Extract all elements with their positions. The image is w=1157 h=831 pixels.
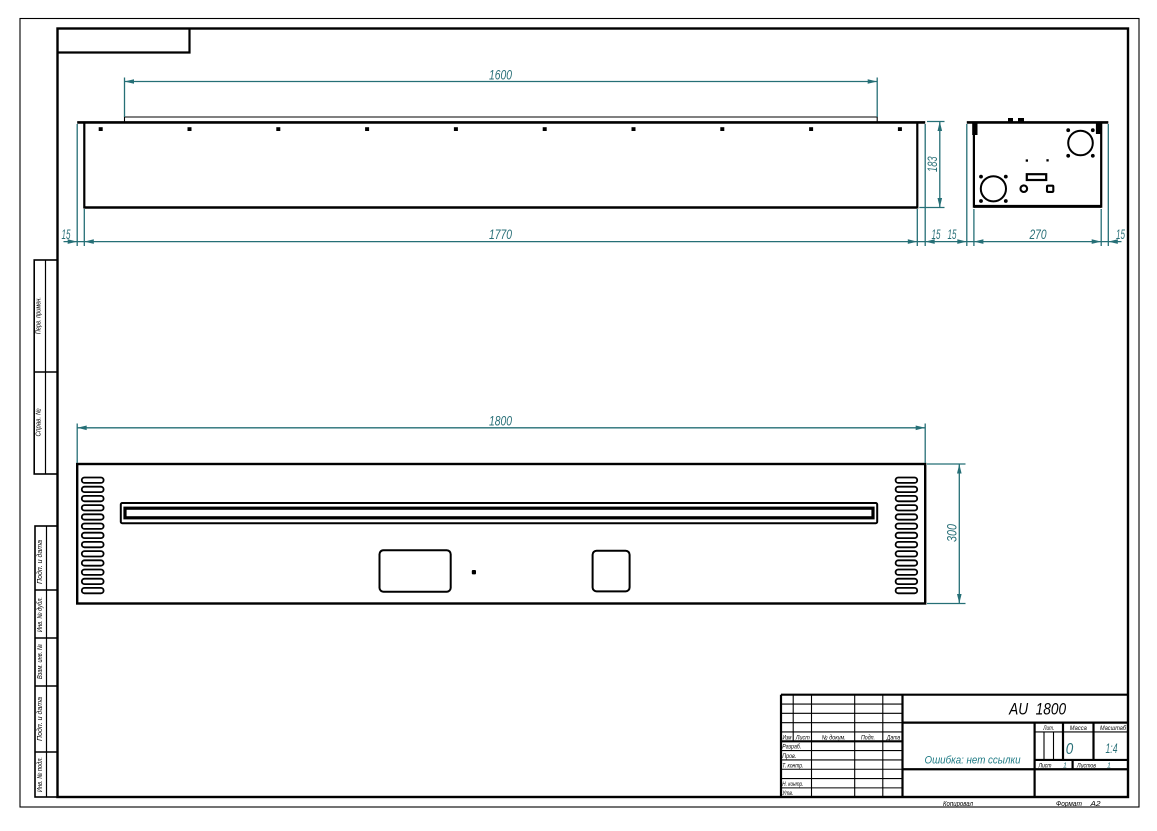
- svg-text:Инв. № дубл.: Инв. № дубл.: [36, 597, 44, 632]
- svg-text:Лист: Лист: [795, 734, 810, 741]
- svg-text:Т. контр.: Т. контр.: [782, 762, 803, 769]
- svg-text:Пров.: Пров.: [782, 753, 796, 760]
- svg-text:Ошибка: нет ссылки: Ошибка: нет ссылки: [925, 755, 1021, 767]
- svg-text:1: 1: [1063, 763, 1067, 770]
- svg-text:15: 15: [932, 227, 941, 242]
- svg-text:Справ. №: Справ. №: [36, 408, 43, 436]
- svg-text:Изм: Изм: [783, 734, 792, 741]
- svg-text:№ докум.: № докум.: [822, 733, 846, 741]
- svg-text:1770: 1770: [489, 227, 512, 242]
- svg-text:Взам. инв. №: Взам. инв. №: [37, 644, 44, 679]
- svg-text:Лит.: Лит.: [1043, 725, 1055, 732]
- svg-text:Разраб.: Разраб.: [782, 743, 801, 751]
- svg-text:Дата: Дата: [886, 734, 901, 741]
- svg-text:15: 15: [948, 227, 957, 242]
- svg-text:1600: 1600: [489, 67, 512, 82]
- svg-text:AU 1800: AU 1800: [1008, 700, 1066, 719]
- svg-text:Инв. № подл.: Инв. № подл.: [36, 757, 44, 792]
- svg-text:300: 300: [945, 524, 960, 542]
- svg-text:Масштаб: Масштаб: [1100, 724, 1126, 732]
- svg-text:Формат: Формат: [1056, 799, 1082, 808]
- svg-text:0: 0: [1066, 741, 1074, 758]
- svg-text:Утв.: Утв.: [782, 790, 794, 797]
- svg-text:270: 270: [1029, 227, 1047, 242]
- svg-text:15: 15: [1116, 227, 1125, 242]
- svg-text:Перв. примен.: Перв. примен.: [36, 297, 43, 334]
- svg-text:1: 1: [1107, 763, 1111, 770]
- svg-text:А2: А2: [1089, 799, 1101, 808]
- svg-text:Подп.: Подп.: [861, 733, 875, 741]
- svg-text:1800: 1800: [489, 414, 512, 429]
- svg-text:15: 15: [62, 227, 71, 242]
- svg-text:Н. контр.: Н. контр.: [782, 781, 803, 788]
- svg-text:Масса: Масса: [1070, 725, 1087, 732]
- svg-text:Листов: Листов: [1076, 763, 1096, 770]
- svg-text:Подп. и дата: Подп. и дата: [36, 697, 44, 741]
- svg-text:Копировал: Копировал: [943, 799, 974, 808]
- svg-text:1:4: 1:4: [1106, 740, 1118, 756]
- svg-text:Подп. и дата: Подп. и дата: [36, 540, 44, 584]
- svg-text:183: 183: [925, 156, 940, 172]
- svg-text:Лист: Лист: [1038, 763, 1052, 770]
